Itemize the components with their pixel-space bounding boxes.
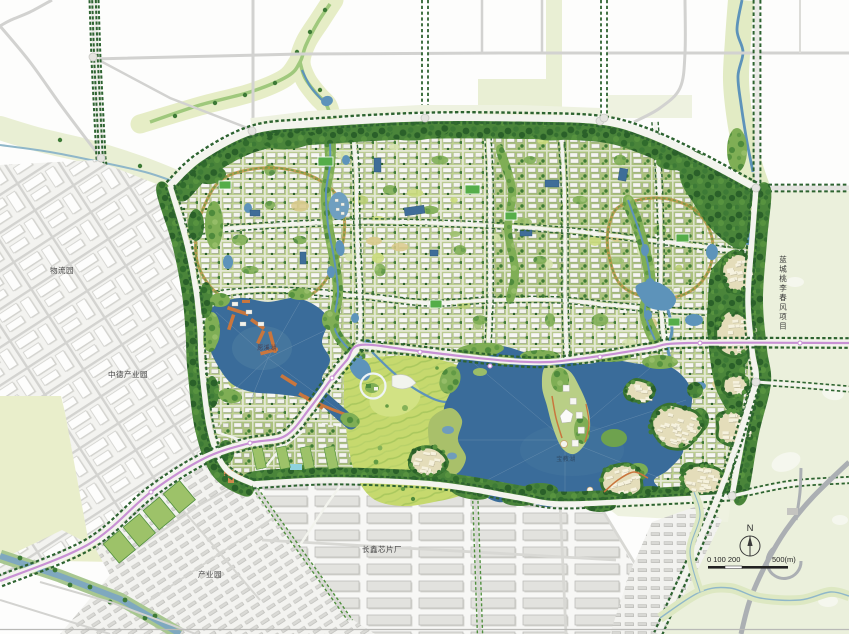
svg-text:中德产业园: 中德产业园 bbox=[108, 369, 148, 379]
svg-text:N: N bbox=[747, 523, 754, 534]
svg-text:长鑫芯片厂: 长鑫芯片厂 bbox=[362, 544, 402, 554]
svg-text:蓝城桃李春风项目: 蓝城桃李春风项目 bbox=[779, 254, 787, 331]
svg-text:0 100 200: 0 100 200 bbox=[707, 555, 740, 564]
svg-text:500(m): 500(m) bbox=[772, 555, 796, 564]
svg-text:物流园: 物流园 bbox=[50, 265, 74, 275]
svg-text:产业园: 产业园 bbox=[198, 569, 222, 579]
svg-text:愿溪湖: 愿溪湖 bbox=[257, 344, 277, 352]
svg-text:宝教湖: 宝教湖 bbox=[556, 455, 576, 463]
